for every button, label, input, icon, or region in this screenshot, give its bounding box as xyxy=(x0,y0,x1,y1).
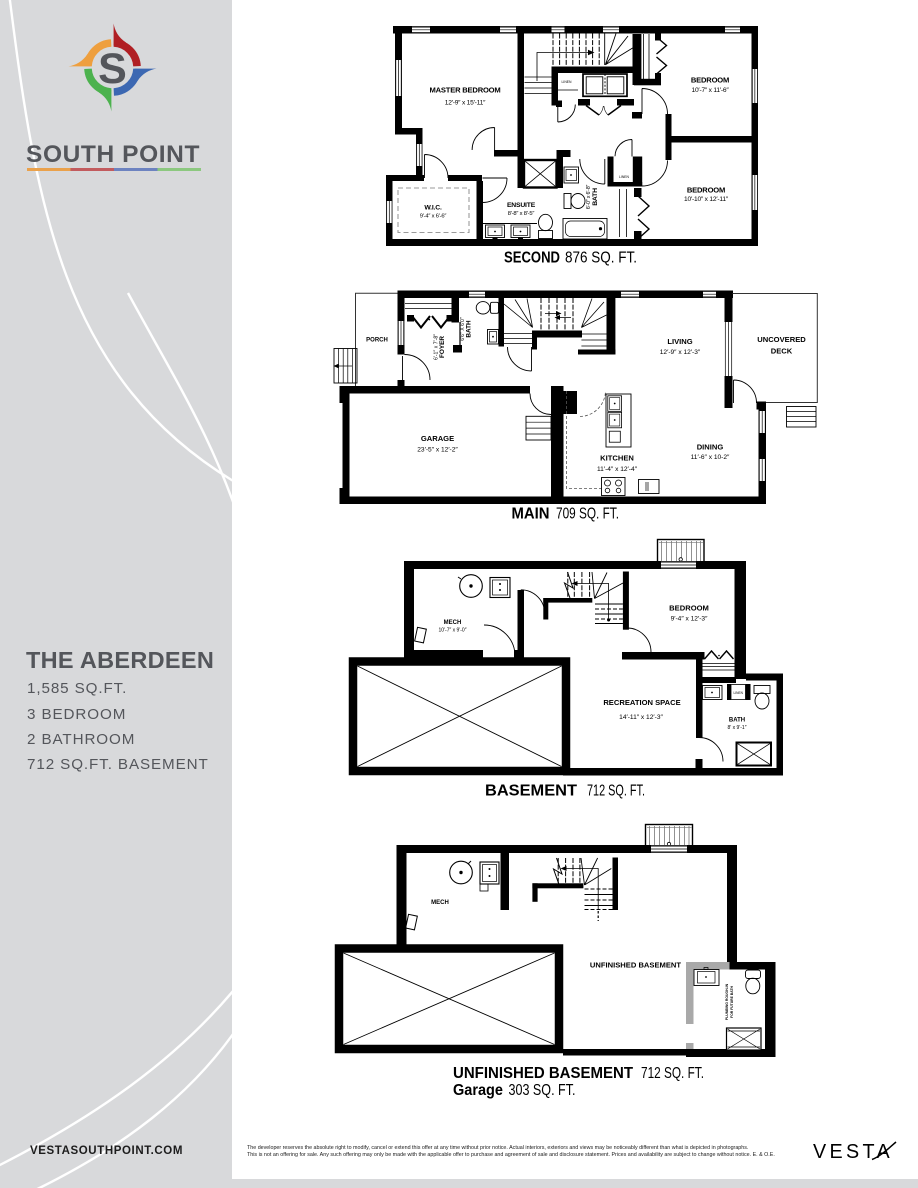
svg-text:6′-1″ x 7′-8″: 6′-1″ x 7′-8″ xyxy=(434,334,440,360)
svg-text:UNFINISHED BASEMENT: UNFINISHED BASEMENT xyxy=(453,1065,633,1082)
svg-text:LINEN: LINEN xyxy=(562,80,573,84)
svg-text:10′-7″ x 9′-0″: 10′-7″ x 9′-0″ xyxy=(439,628,467,634)
svg-text:S: S xyxy=(98,45,127,93)
svg-text:709 SQ. FT.: 709 SQ. FT. xyxy=(556,506,619,523)
svg-text:UNCOVERED: UNCOVERED xyxy=(757,335,806,344)
svg-text:BEDROOM: BEDROOM xyxy=(687,186,725,195)
svg-text:876 SQ. FT.: 876 SQ. FT. xyxy=(565,250,637,267)
svg-text:14′-11″ x 12′-3″: 14′-11″ x 12′-3″ xyxy=(619,714,663,721)
svg-text:9′-4″ x 12′-3″: 9′-4″ x 12′-3″ xyxy=(671,616,708,623)
svg-text:11′-4″ x 12′-4″: 11′-4″ x 12′-4″ xyxy=(597,466,638,473)
svg-text:10′-7″ x 11′-6″: 10′-7″ x 11′-6″ xyxy=(691,87,729,94)
svg-text:9′-4″ x 6′-6″: 9′-4″ x 6′-6″ xyxy=(420,214,447,220)
svg-text:LIVING: LIVING xyxy=(667,337,692,346)
svg-text:UNFINISHED BASEMENT: UNFINISHED BASEMENT xyxy=(590,961,681,970)
svg-text:PLUMBING ROUGH-IN: PLUMBING ROUGH-IN xyxy=(725,983,729,1020)
svg-text:LINEN: LINEN xyxy=(734,691,744,695)
svg-text:11′-6″ x 10-2″: 11′-6″ x 10-2″ xyxy=(691,454,730,461)
svg-text:Garage: Garage xyxy=(453,1082,503,1099)
svg-text:10′-10″ x 12′-11″: 10′-10″ x 12′-11″ xyxy=(684,196,729,203)
svg-text:712 SQ. FT.: 712 SQ. FT. xyxy=(587,783,645,800)
svg-text:DECK: DECK xyxy=(771,347,793,356)
svg-text:FOR FUTURE BATH: FOR FUTURE BATH xyxy=(730,985,734,1018)
svg-text:MECH: MECH xyxy=(431,900,449,906)
svg-text:FOYER: FOYER xyxy=(439,336,446,358)
svg-text:8′ x 9′-1″: 8′ x 9′-1″ xyxy=(728,725,747,731)
svg-text:W.I.C.: W.I.C. xyxy=(424,205,442,212)
svg-text:BASEMENT: BASEMENT xyxy=(485,783,577,800)
svg-text:LINEN: LINEN xyxy=(619,175,630,179)
svg-text:ENSUITE: ENSUITE xyxy=(507,202,536,209)
svg-text:BEDROOM: BEDROOM xyxy=(691,76,729,85)
svg-text:MAIN: MAIN xyxy=(512,506,550,523)
svg-text:RECREATION SPACE: RECREATION SPACE xyxy=(603,698,680,707)
svg-text:712 SQ. FT.: 712 SQ. FT. xyxy=(641,1065,704,1082)
svg-text:PORCH: PORCH xyxy=(366,338,388,344)
svg-text:BATH: BATH xyxy=(592,188,599,206)
svg-text:BEDROOM: BEDROOM xyxy=(669,604,709,613)
svg-text:BATH: BATH xyxy=(729,718,745,724)
svg-text:12′-9″ x 12′-3″: 12′-9″ x 12′-3″ xyxy=(660,349,701,356)
svg-text:23′-5″ x 12′-2″: 23′-5″ x 12′-2″ xyxy=(417,447,458,454)
svg-text:KITCHEN: KITCHEN xyxy=(600,454,634,463)
svg-text:6′6″ X 6′0″: 6′6″ X 6′0″ xyxy=(460,317,466,341)
svg-text:12′-9″ x 15′-11″: 12′-9″ x 15′-11″ xyxy=(445,100,486,107)
svg-text:MASTER BEDROOM: MASTER BEDROOM xyxy=(429,86,500,95)
svg-text:6′-0″ x 6′-8″: 6′-0″ x 6′-8″ xyxy=(586,184,592,209)
svg-text:GARAGE: GARAGE xyxy=(421,434,454,443)
svg-text:BATH: BATH xyxy=(466,320,473,338)
svg-text:SECOND: SECOND xyxy=(504,250,560,267)
svg-text:DINING: DINING xyxy=(697,443,724,452)
svg-text:8′-8″ x 8′-5″: 8′-8″ x 8′-5″ xyxy=(508,211,535,217)
svg-text:303 SQ. FT.: 303 SQ. FT. xyxy=(509,1082,576,1099)
svg-text:MECH: MECH xyxy=(444,620,462,626)
